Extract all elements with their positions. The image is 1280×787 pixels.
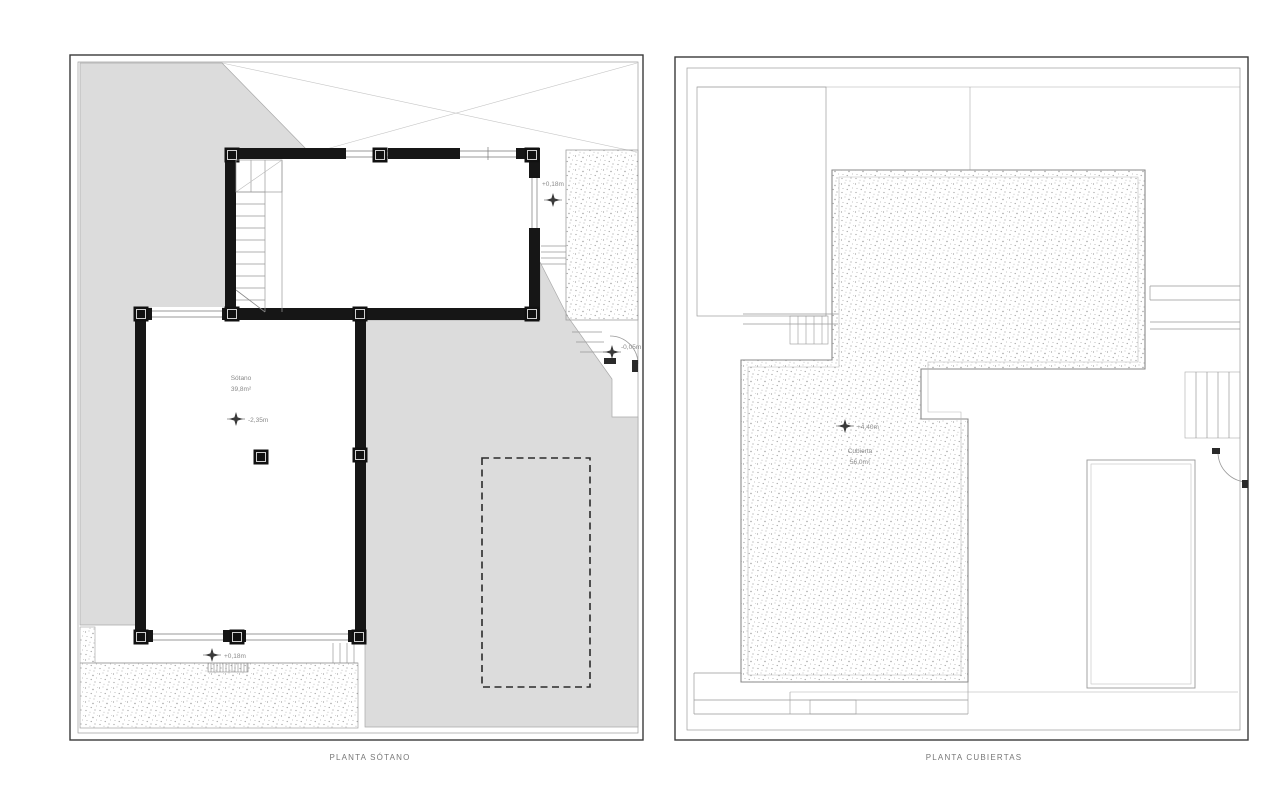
gravel-band-bottom: [80, 663, 358, 728]
roof-bridge-lines: [1150, 286, 1240, 329]
gravel-strip-left: [80, 627, 95, 663]
level-marker-icon: [203, 648, 221, 662]
roof-pool: [1087, 460, 1195, 688]
exterior-steps-upper: [541, 246, 566, 264]
basement-plan: +0,18m +0,18m -2,35m -0,05m Sótano 39,8m…: [70, 55, 643, 762]
floorplan-canvas: +0,18m +0,18m -2,35m -0,05m Sótano 39,8m…: [0, 0, 1280, 787]
drawing-sheet: +0,18m +0,18m -2,35m -0,05m Sótano 39,8m…: [0, 0, 1280, 787]
drain-grille: [208, 663, 248, 672]
level-marker-icon: [603, 345, 621, 359]
gravel-strip-right: [566, 150, 638, 320]
level-label: +4,40m: [857, 424, 879, 431]
room-name: Sótano: [231, 375, 252, 382]
level-marker-icon: [227, 412, 245, 426]
roof-stairs-right: [1185, 372, 1240, 438]
room-area: 56,0m²: [850, 459, 871, 466]
level-label: +0,18m: [224, 653, 246, 660]
lower-terrace-outline: [697, 87, 826, 316]
basement-entry-door: [604, 336, 638, 372]
roof-entry-door: [1212, 448, 1248, 488]
level-marker-icon: [544, 193, 562, 207]
basement-stairs: [236, 160, 282, 312]
roof-slab: [741, 170, 1145, 682]
basement-plan-title: PLANTA SÓTANO: [329, 753, 410, 762]
level-label: -2,35m: [248, 417, 268, 424]
room-name: Cubierta: [848, 448, 873, 455]
roof-plan: +4,40m Cubierta 56,0m² PLANTA CUBIERTAS: [675, 57, 1248, 762]
roof-plan-title: PLANTA CUBIERTAS: [926, 753, 1023, 762]
level-label: +0,18m: [542, 181, 564, 188]
room-area: 39,8m²: [231, 386, 252, 393]
roof-steps-left: [743, 314, 838, 344]
level-label: -0,05m: [621, 344, 641, 351]
terrain-upper-left: [80, 63, 311, 625]
